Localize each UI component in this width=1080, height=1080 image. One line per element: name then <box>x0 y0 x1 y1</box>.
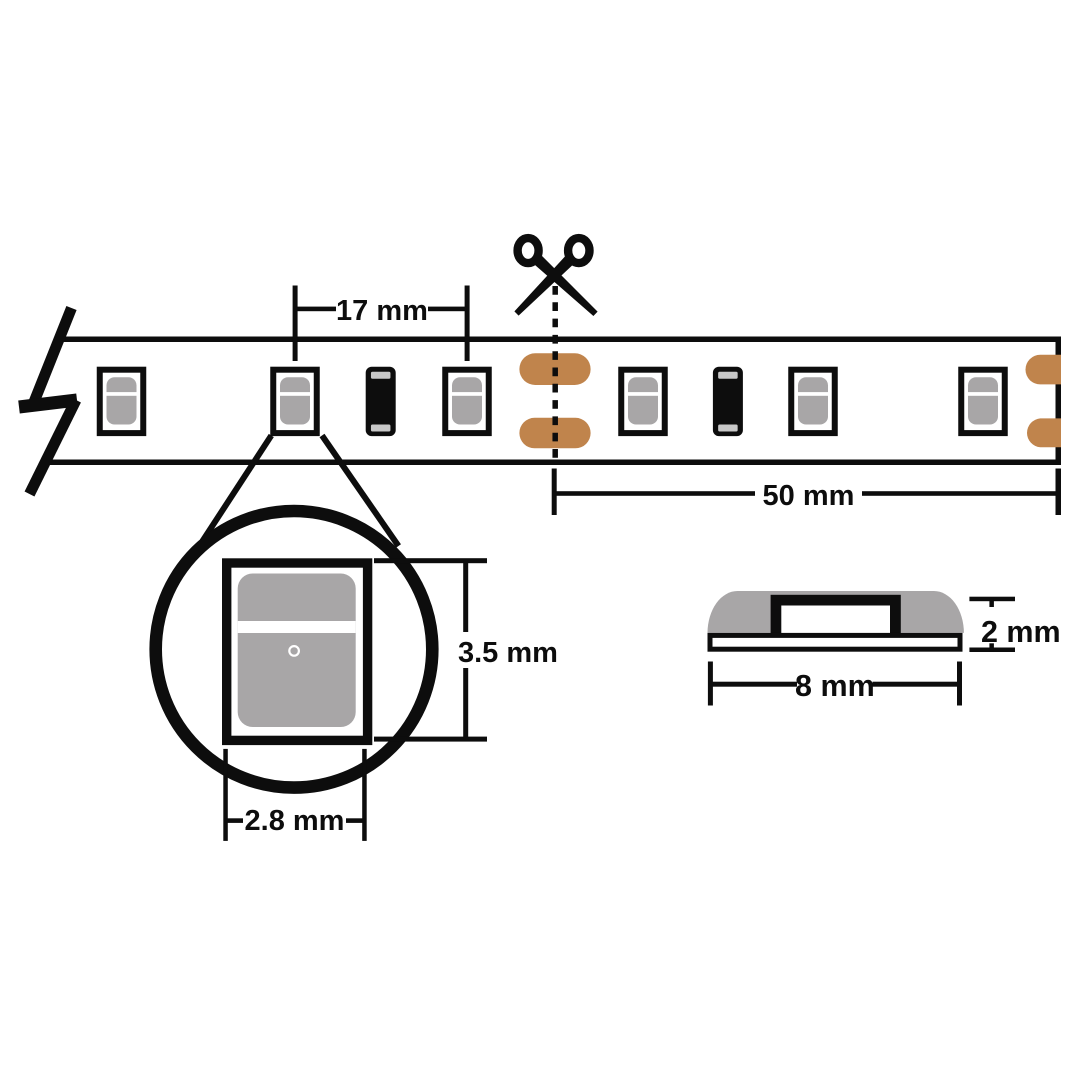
svg-text:17 mm: 17 mm <box>336 295 428 327</box>
svg-text:2 mm: 2 mm <box>981 615 1061 649</box>
svg-text:50 mm: 50 mm <box>763 480 855 512</box>
svg-text:3.5 mm: 3.5 mm <box>458 637 558 669</box>
svg-text:2.8 mm: 2.8 mm <box>245 805 345 837</box>
svg-text:8 mm: 8 mm <box>795 669 875 703</box>
